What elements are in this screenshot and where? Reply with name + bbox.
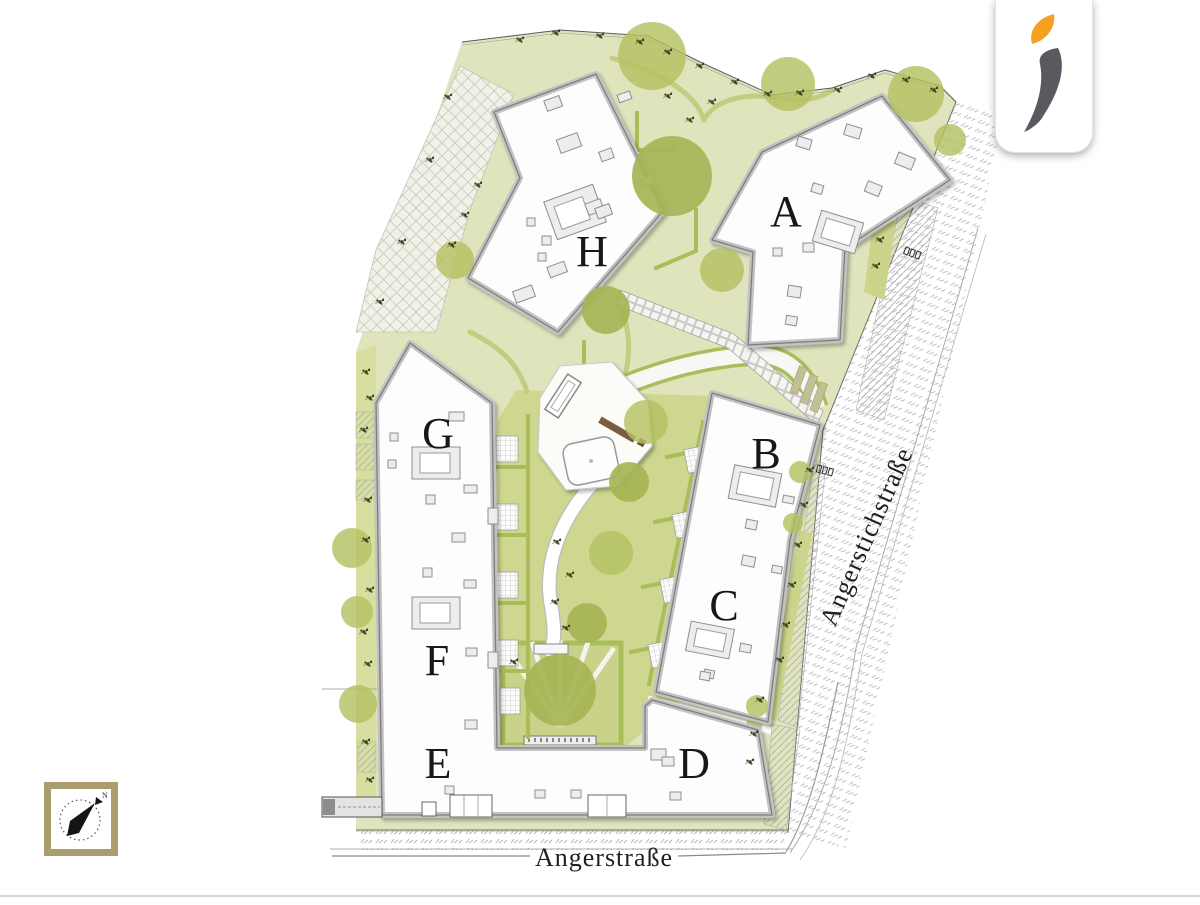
building-label-c: C	[709, 581, 738, 630]
building-label-h: H	[576, 227, 608, 276]
swoosh-icon	[1024, 48, 1062, 132]
courtyard-bench	[534, 644, 568, 654]
compass-north-label: N	[102, 791, 108, 800]
compass: N	[44, 782, 118, 856]
building-label-a: A	[770, 187, 802, 236]
company-logo	[995, 0, 1093, 153]
street-label-angerstrasse: Angerstraße	[535, 843, 673, 872]
penthouse-f	[412, 597, 460, 629]
building-label-f: F	[425, 636, 449, 685]
building-label-d: D	[678, 739, 710, 788]
building-label-g: G	[422, 409, 454, 458]
flame-icon	[1031, 14, 1054, 44]
building-label-e: E	[425, 739, 452, 788]
garage-ramp	[322, 797, 382, 817]
logo-icon	[1014, 14, 1078, 138]
compass-needle-icon	[67, 803, 95, 836]
compass-rose: N	[51, 789, 111, 849]
building-label-b: B	[751, 429, 780, 478]
garden-terrace	[500, 688, 520, 714]
